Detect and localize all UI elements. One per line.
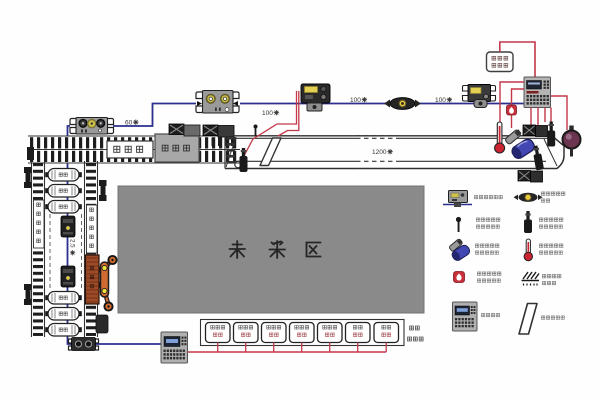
svg-text:1200: 1200 (372, 149, 387, 156)
svg-text:100: 100 (262, 110, 273, 117)
svg-text:60: 60 (125, 120, 133, 127)
svg-text:2.5: 2.5 (69, 239, 76, 248)
svg-text:100: 100 (350, 97, 361, 104)
svg-text:100: 100 (435, 97, 446, 104)
